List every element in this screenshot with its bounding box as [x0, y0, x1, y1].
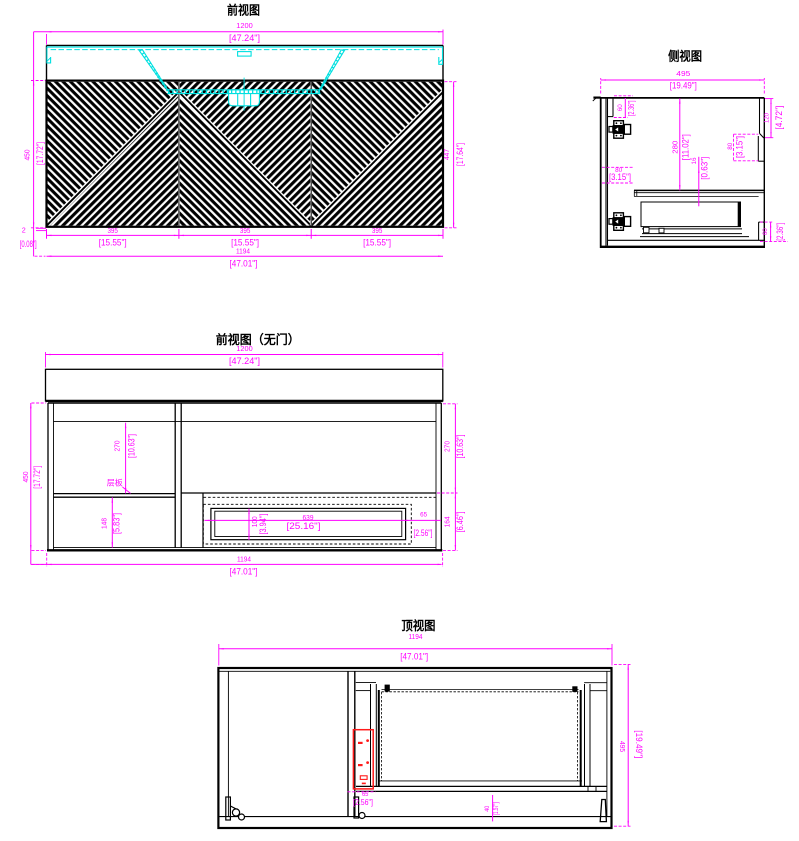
svg-text:[4.72"]: [4.72"] [774, 106, 785, 130]
svg-text:1194: 1194 [409, 634, 423, 641]
svg-text:[25.16"]: [25.16"] [287, 521, 321, 532]
svg-text:[10.63"]: [10.63"] [455, 435, 466, 459]
svg-text:[0.63"]: [0.63"] [699, 157, 710, 180]
svg-text:[10.63"]: [10.63"] [126, 434, 137, 458]
svg-text:164: 164 [445, 516, 452, 527]
svg-text:60: 60 [762, 228, 769, 235]
svg-text:前视图: 前视图 [227, 2, 260, 17]
svg-text:[47.24"]: [47.24"] [229, 33, 260, 44]
svg-text:层板: 层板 [107, 478, 123, 488]
svg-text:395: 395 [372, 228, 383, 235]
svg-text:[17.72"]: [17.72"] [32, 466, 43, 489]
svg-text:1194: 1194 [236, 248, 250, 255]
svg-text:148: 148 [101, 518, 108, 529]
svg-text:280: 280 [673, 141, 680, 154]
svg-text:65: 65 [420, 512, 427, 519]
svg-text:前视图（无门）: 前视图（无门） [216, 332, 300, 347]
svg-text:[1.57"]: [1.57"] [493, 802, 500, 815]
svg-text:450: 450 [23, 471, 30, 482]
svg-text:495: 495 [618, 741, 625, 752]
svg-text:[17.72"]: [17.72"] [35, 142, 46, 165]
svg-text:[3.94"]: [3.94"] [258, 514, 269, 535]
svg-text:[19.49"]: [19.49"] [670, 81, 697, 92]
svg-text:1194: 1194 [237, 557, 251, 564]
svg-text:395: 395 [240, 228, 251, 235]
svg-text:60: 60 [617, 104, 624, 111]
svg-text:395: 395 [107, 228, 118, 235]
svg-text:[47.01"]: [47.01"] [400, 651, 428, 662]
svg-text:[6.46"]: [6.46"] [455, 511, 466, 532]
svg-text:1200: 1200 [236, 23, 253, 30]
svg-text:[15.55"]: [15.55"] [231, 238, 259, 249]
svg-text:[2.36"]: [2.36"] [626, 100, 636, 116]
svg-text:[19.49"]: [19.49"] [633, 730, 644, 758]
svg-text:16: 16 [691, 157, 698, 164]
svg-text:270: 270 [445, 441, 452, 452]
svg-text:80: 80 [727, 142, 734, 149]
svg-text:[47.24"]: [47.24"] [229, 356, 260, 367]
svg-text:[47.01"]: [47.01"] [230, 567, 258, 578]
svg-text:40: 40 [485, 805, 491, 812]
svg-text:顶视图: 顶视图 [402, 618, 436, 633]
svg-text:[2.36"]: [2.36"] [775, 223, 785, 241]
svg-text:120: 120 [764, 113, 771, 123]
svg-text:[11.02"]: [11.02"] [681, 134, 692, 160]
svg-text:495: 495 [676, 71, 690, 78]
svg-text:侧视图: 侧视图 [668, 48, 702, 63]
svg-text:1200: 1200 [236, 346, 252, 353]
svg-text:[5.83"]: [5.83"] [112, 513, 123, 534]
svg-text:270: 270 [115, 440, 122, 451]
svg-text:2: 2 [22, 228, 26, 235]
svg-text:[17.64"]: [17.64"] [455, 143, 466, 166]
svg-text:450: 450 [25, 149, 32, 160]
svg-text:[3.15"]: [3.15"] [609, 172, 631, 182]
svg-text:[15.55"]: [15.55"] [99, 238, 127, 249]
svg-text:[2.56"]: [2.56"] [414, 528, 433, 538]
svg-text:[15.55"]: [15.55"] [363, 238, 391, 249]
svg-text:[2.56"]: [2.56"] [353, 797, 373, 807]
svg-text:[47.01"]: [47.01"] [230, 259, 258, 270]
svg-text:447: 447 [444, 149, 451, 160]
svg-text:[3.15"]: [3.15"] [735, 136, 745, 158]
svg-text:[0.08"]: [0.08"] [20, 239, 37, 249]
